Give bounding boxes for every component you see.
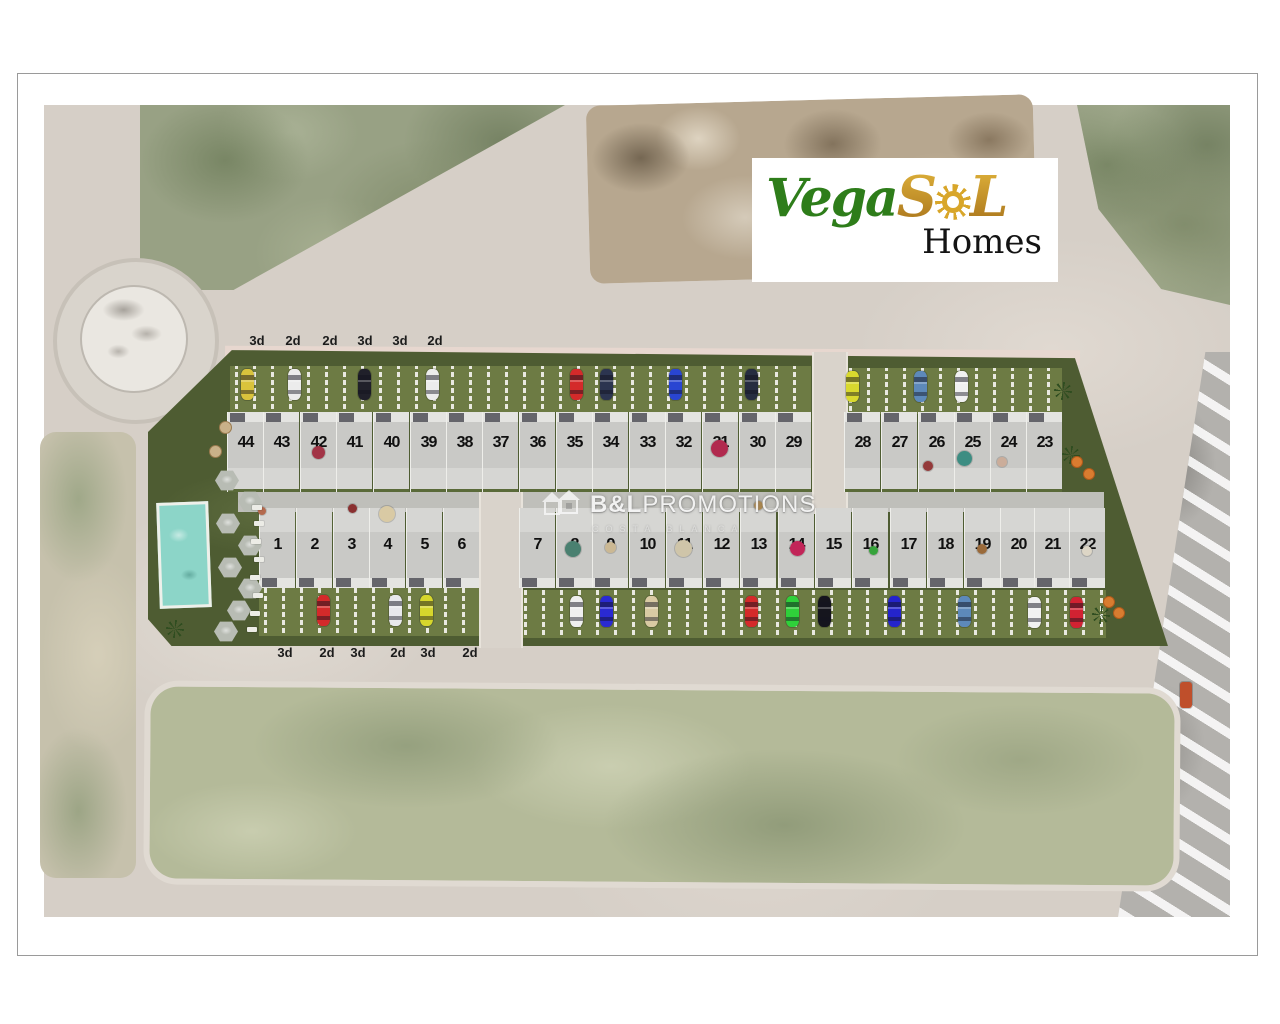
logo-s-text: S bbox=[897, 164, 937, 230]
logo-homes-text: Homes bbox=[922, 222, 1042, 262]
logo-wordmark: VegaSL bbox=[766, 164, 1009, 230]
vegasol-logo: VegaSL Homes bbox=[752, 158, 1058, 282]
image-border-frame bbox=[17, 73, 1258, 956]
logo-vega-text: Vega bbox=[766, 168, 897, 229]
logo-l-text: L bbox=[969, 164, 1008, 230]
sun-icon bbox=[935, 184, 971, 220]
site-plan-image: 4443424140393837363534333231302928272625… bbox=[0, 0, 1280, 1024]
